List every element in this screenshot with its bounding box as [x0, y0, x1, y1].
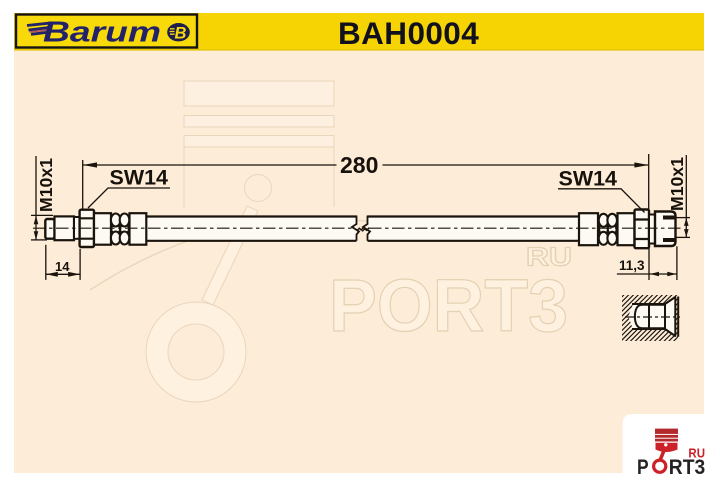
svg-text:14: 14 — [55, 259, 70, 274]
svg-text:11,3: 11,3 — [619, 258, 645, 273]
svg-text:PORT3: PORT3 — [329, 264, 568, 347]
svg-text:RU: RU — [688, 446, 705, 460]
svg-text:Barum: Barum — [43, 17, 161, 49]
svg-text:RU: RU — [526, 242, 572, 272]
svg-text:B: B — [175, 24, 187, 42]
svg-text:SW14: SW14 — [559, 168, 618, 191]
svg-text:M10x1: M10x1 — [667, 157, 687, 211]
svg-text:SW14: SW14 — [110, 167, 169, 190]
svg-text:BAH0004: BAH0004 — [338, 15, 479, 51]
svg-text:M10x1: M10x1 — [36, 158, 56, 212]
svg-text:P: P — [637, 455, 649, 479]
svg-text:280: 280 — [340, 152, 378, 178]
